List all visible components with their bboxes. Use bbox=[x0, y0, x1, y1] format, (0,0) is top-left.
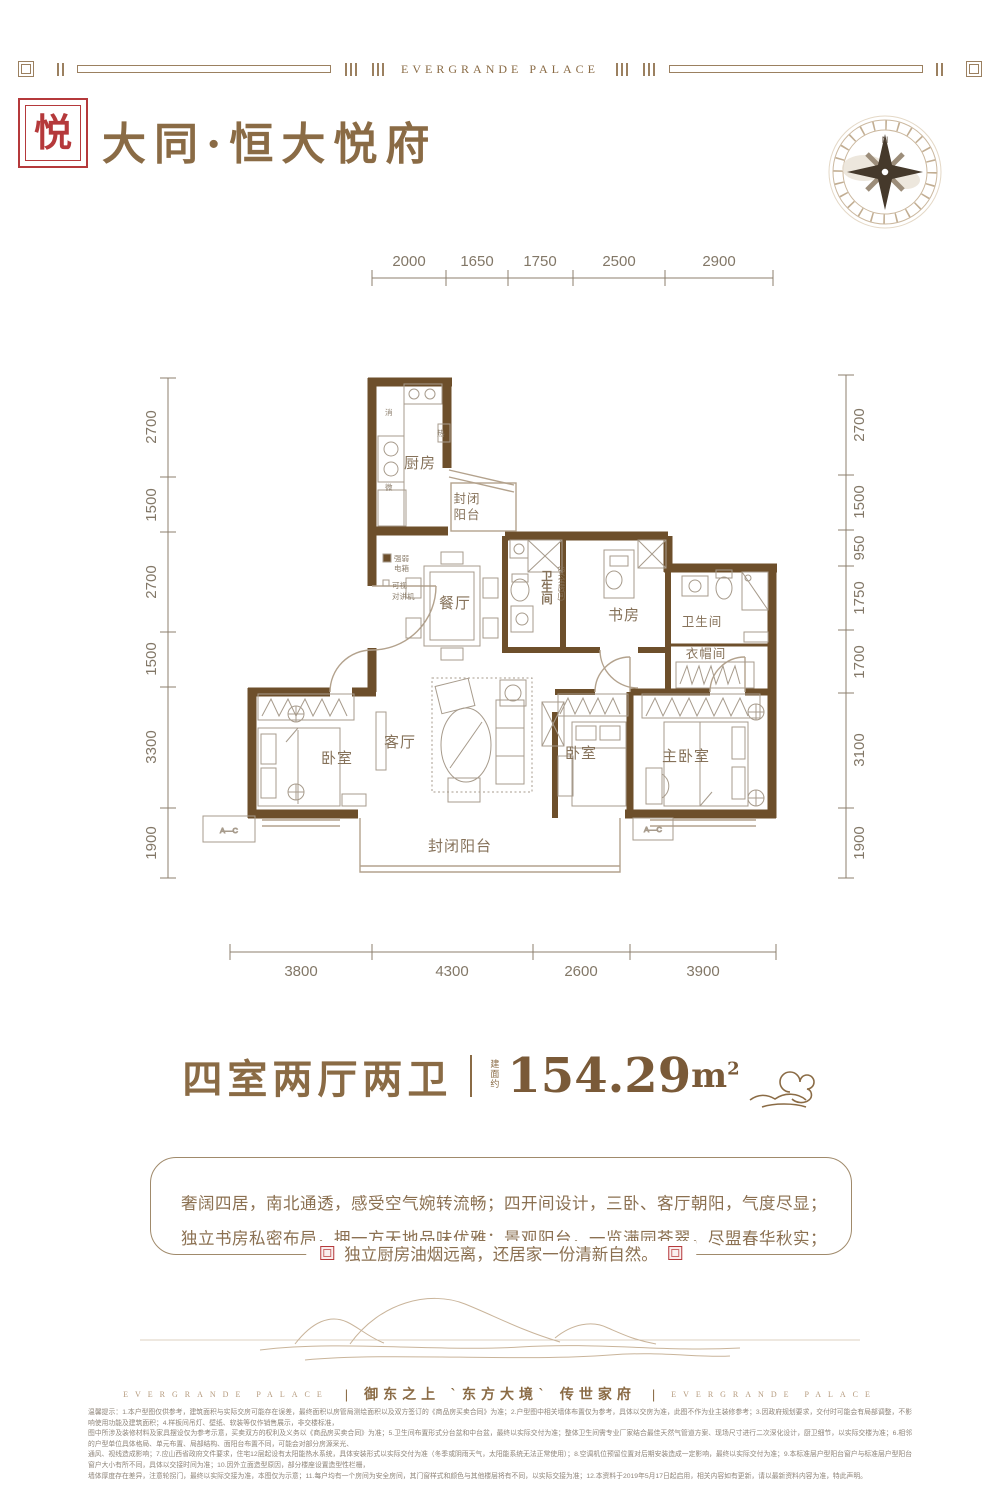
dim-top-0: 2000 bbox=[392, 253, 425, 270]
label-power-box-2: 电箱 bbox=[394, 563, 409, 573]
dim-left-4: 3300 bbox=[143, 730, 160, 763]
study-furniture bbox=[604, 540, 666, 598]
area-unit: m2 bbox=[691, 1056, 740, 1096]
mountains-ornament bbox=[100, 1282, 900, 1372]
footer-separator-right: | bbox=[652, 1387, 655, 1402]
label-master: 主卧室 bbox=[662, 748, 710, 765]
dim-left-1: 1500 bbox=[143, 488, 160, 521]
label-cloakroom: 衣帽间 bbox=[686, 646, 727, 661]
label-appliance-re: 热 bbox=[437, 428, 445, 438]
disclaimer-line-1: 温馨提示：1.本户型图仅供参考，建筑面积与实际交房可能存在误差，最终面积以房管局… bbox=[88, 1408, 912, 1429]
description-line-3-wrap: 独立厨房油烟远离，还居家一份清新自然。 bbox=[306, 1241, 696, 1265]
ac-platform-left: A—C bbox=[203, 816, 255, 842]
power-box-icon bbox=[383, 554, 391, 562]
description-line-1: 奢阔四居，南北通透，感受空气婉转流畅；四开间设计，三卧、客厅朝阳，气度尽显； bbox=[181, 1190, 821, 1214]
dim-left-0: 2700 bbox=[143, 410, 160, 443]
area-prefix: 建面约 bbox=[488, 1059, 501, 1093]
seal-character: 悦 bbox=[34, 114, 72, 152]
floor-plan: 2000 1650 1750 2500 2900 2700 1500 2700 … bbox=[140, 240, 900, 1000]
border-seal-right-icon bbox=[966, 61, 982, 77]
dim-bottom-3: 3900 bbox=[686, 963, 719, 980]
ac-right-label: A—C bbox=[644, 825, 663, 834]
dim-right-2: 950 bbox=[851, 535, 868, 560]
label-appliance-xiao: 消 bbox=[385, 407, 393, 417]
footer-slogan: 御东之上 `东方大境` 传世家府 bbox=[364, 1384, 636, 1404]
top-decorative-border: EVERGRANDE PALACE bbox=[0, 58, 1000, 80]
disclaimer-line-2: 图中所涉及装修材料及家具摆设仅为参考示意，买卖双方的权利及义务以《商品房买卖合同… bbox=[88, 1429, 912, 1450]
label-intercom-1: 可视 bbox=[392, 580, 407, 590]
label-appliance-wei: 微 bbox=[385, 482, 393, 492]
brand-seal-logo: 悦 bbox=[18, 98, 88, 168]
cloud-ornament-icon bbox=[744, 1062, 818, 1112]
label-intercom-2: 对讲机 bbox=[392, 591, 415, 601]
furniture: A—C A—C bbox=[203, 384, 768, 842]
label-kitchen: 厨房 bbox=[404, 455, 436, 472]
label-bath-safe-note: (安全房间) bbox=[556, 566, 567, 601]
label-bedroom-left: 卧室 bbox=[321, 750, 353, 767]
area-value: 154.29 bbox=[507, 1052, 691, 1100]
dim-right-3: 1750 bbox=[851, 581, 868, 614]
disclaimer-line-3: 通风、视线造成影响；7.应山西省政府文件要求，住宅12层起设有太阳能热水系统，具… bbox=[88, 1450, 912, 1471]
ac-platform-right: A—C bbox=[633, 818, 673, 840]
dim-bottom-0: 3800 bbox=[284, 963, 317, 980]
label-bedroom-mid: 卧室 bbox=[565, 745, 597, 762]
description-line-3: 独立厨房油烟远离，还居家一份清新自然。 bbox=[344, 1241, 658, 1265]
intercom-icon bbox=[383, 580, 389, 586]
dim-top-4: 2900 bbox=[702, 253, 735, 270]
ac-left-label: A—C bbox=[220, 826, 239, 835]
description-box: 奢阔四居，南北通透，感受空气婉转流畅；四开间设计，三卧、客厅朝阳，气度尽显； 独… bbox=[150, 1157, 852, 1255]
dim-top-2: 1750 bbox=[523, 253, 556, 270]
label-study: 书房 bbox=[608, 607, 640, 624]
disclaimer: 温馨提示：1.本户型图仅供参考，建筑面积与实际交房可能存在误差，最终面积以房管局… bbox=[88, 1408, 912, 1482]
footer-separator-left: | bbox=[345, 1387, 348, 1402]
dim-bottom-2: 2600 bbox=[564, 963, 597, 980]
label-living: 客厅 bbox=[384, 734, 416, 751]
label-bath-safe: 卫生间 bbox=[538, 570, 554, 605]
border-seal-left-icon bbox=[18, 61, 34, 77]
project-title: 大同·恒大悦府 bbox=[102, 108, 437, 172]
dim-right-4: 1700 bbox=[851, 645, 868, 678]
dim-top-3: 2500 bbox=[602, 253, 635, 270]
dim-top-1: 1650 bbox=[460, 253, 493, 270]
bath2-fixtures bbox=[682, 570, 768, 610]
label-bath2: 卫生间 bbox=[682, 615, 723, 629]
border-brand-text: EVERGRANDE PALACE bbox=[401, 62, 599, 77]
footer-slogan-bar: EVERGRANDE PALACE | 御东之上 `东方大境` 传世家府 | E… bbox=[0, 1384, 1000, 1404]
mini-seal-left-icon bbox=[320, 1246, 334, 1260]
dim-left-5: 1900 bbox=[143, 826, 160, 859]
footer-brand-left: EVERGRANDE PALACE bbox=[123, 1390, 329, 1399]
mini-seal-right-icon bbox=[668, 1246, 682, 1260]
label-balcony-bottom: 封闭阳台 bbox=[428, 838, 492, 855]
footer-brand-right: EVERGRANDE PALACE bbox=[671, 1390, 877, 1399]
page: EVERGRANDE PALACE 悦 大同·恒大悦府 N bbox=[0, 0, 1000, 1489]
dim-right-5: 3100 bbox=[851, 733, 868, 766]
label-dining: 餐厅 bbox=[439, 595, 471, 612]
dim-right-6: 1900 bbox=[851, 826, 868, 859]
label-balcony-top-2: 阳台 bbox=[453, 507, 480, 522]
dim-left-3: 1500 bbox=[143, 642, 160, 675]
dim-left-2: 2700 bbox=[143, 565, 160, 598]
disclaimer-line-4: 墙体厚度存在差异，注意轮拐门，最终以实际交接为准，本图仅为示意；11.每户均有一… bbox=[88, 1472, 912, 1483]
dim-right-0: 2700 bbox=[851, 408, 868, 441]
layout-title: 四室两厅两卫 bbox=[182, 1047, 452, 1105]
summary-bar: 四室两厅两卫 建面约 154.29 m2 bbox=[0, 1040, 1000, 1112]
dim-right-1: 1500 bbox=[851, 485, 868, 518]
compass-north-label: N bbox=[882, 135, 889, 145]
dim-bottom-1: 4300 bbox=[435, 963, 468, 980]
summary-divider bbox=[470, 1055, 472, 1097]
label-balcony-top-1: 封闭 bbox=[453, 492, 480, 506]
compass-rose-icon: N bbox=[820, 107, 950, 237]
label-power-box-1: 强弱 bbox=[394, 554, 409, 563]
